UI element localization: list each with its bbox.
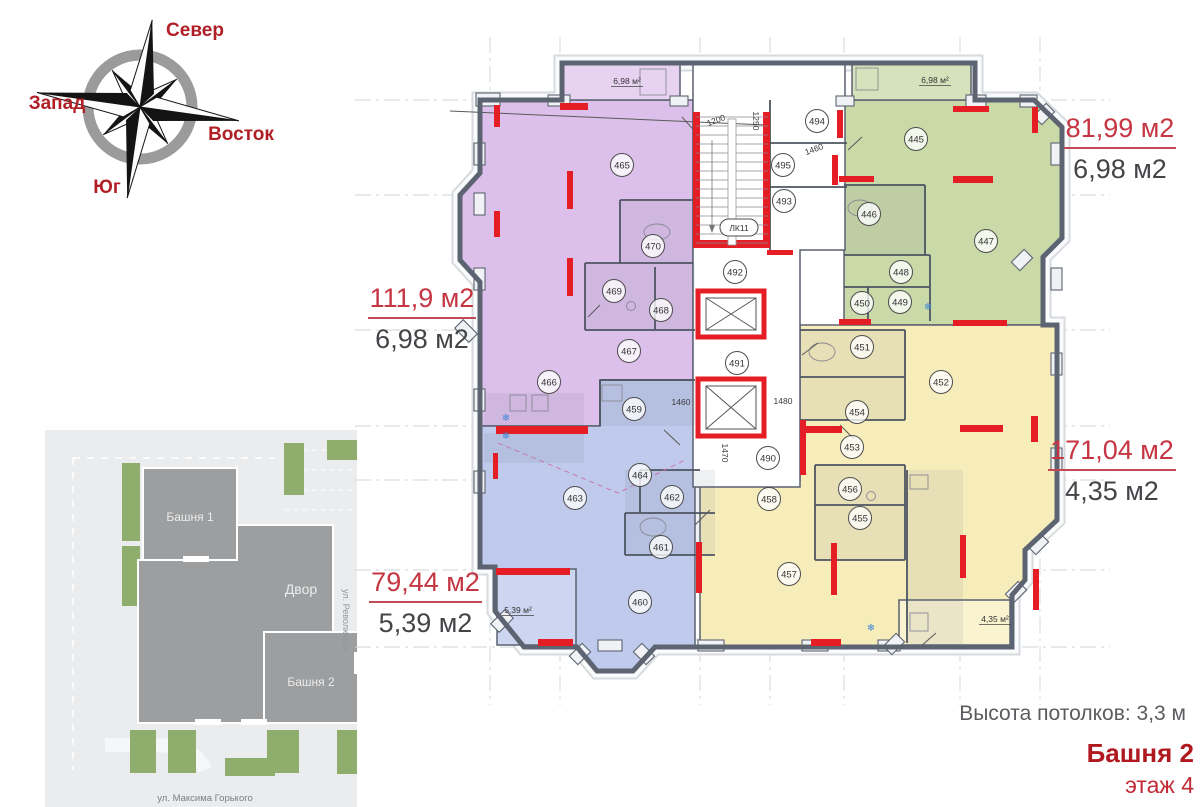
balcony-value: 6,98 м2	[1045, 154, 1195, 185]
balcony-value: 4,35 м2	[1032, 476, 1192, 507]
site-tower1-label: Башня 1	[166, 510, 214, 524]
svg-text:❄: ❄	[502, 431, 510, 442]
svg-text:459: 459	[626, 405, 642, 416]
svg-text:460: 460	[632, 598, 648, 609]
room-marker-470: 470	[642, 235, 665, 258]
room-marker-450: 450	[851, 292, 874, 315]
balcony-value: 6,98 м2	[352, 324, 492, 355]
balcony-area-label: 6,98 м²	[921, 75, 949, 85]
svg-text:493: 493	[776, 197, 792, 208]
room-marker-455: 455	[849, 507, 872, 530]
dimension-label: 1470	[720, 444, 730, 463]
area-value: 171,04 м2	[1048, 435, 1176, 471]
floor-plan: ❄❄❄❄ 46546646746846947044544644744844945…	[450, 55, 1065, 703]
svg-text:492: 492	[727, 268, 743, 279]
floor-number: этаж 4	[1125, 772, 1194, 799]
area-value: 79,44 м2	[369, 567, 482, 603]
room-marker-454: 454	[846, 401, 869, 424]
svg-text:464: 464	[632, 471, 648, 482]
dimension-label: 1250	[751, 112, 761, 131]
svg-text:490: 490	[760, 454, 776, 465]
room-marker-465: 465	[611, 154, 634, 177]
compass-rose: Север Запад Восток Юг	[10, 5, 290, 215]
svg-text:451: 451	[854, 343, 870, 354]
svg-text:456: 456	[842, 485, 858, 496]
room-marker-494: 494	[806, 110, 829, 133]
floor-plan-page: Север Запад Восток Юг	[0, 0, 1200, 807]
compass-label-west: Запад	[29, 93, 86, 114]
svg-text:ЛК11: ЛК11	[729, 223, 749, 233]
room-marker-469: 469	[603, 280, 626, 303]
svg-text:450: 450	[854, 299, 870, 310]
svg-text:❄: ❄	[502, 413, 510, 424]
svg-text:453: 453	[844, 443, 860, 454]
room-marker-447: 447	[975, 230, 998, 253]
room-marker-468: 468	[650, 299, 673, 322]
dimension-label: 1460	[672, 397, 691, 407]
dimension-label: 1480	[774, 396, 793, 406]
balcony-area-label: 6,98 м²	[613, 76, 641, 86]
room-marker-492: 492	[724, 261, 747, 284]
site-plan: Башня 1 Двор Башня 2 ул. Революции ул. М…	[45, 430, 357, 807]
stair-label: ЛК11	[720, 219, 758, 236]
svg-text:462: 462	[664, 493, 680, 504]
svg-text:466: 466	[541, 378, 557, 389]
ceiling-height-note: Высота потолков: 3,3 м	[959, 702, 1186, 726]
room-marker-451: 451	[851, 336, 874, 359]
room-marker-456: 456	[839, 478, 862, 501]
area-value: 81,99 м2	[1064, 113, 1177, 149]
svg-text:❄: ❄	[867, 623, 875, 634]
area-label-green: 81,99 м2 6,98 м2	[1045, 113, 1195, 185]
svg-text:465: 465	[614, 161, 630, 172]
room-marker-457: 457	[778, 563, 801, 586]
room-marker-453: 453	[841, 436, 864, 459]
svg-text:❄: ❄	[924, 302, 932, 313]
svg-text:446: 446	[861, 210, 877, 221]
svg-text:470: 470	[645, 242, 661, 253]
svg-text:491: 491	[729, 359, 745, 370]
svg-text:447: 447	[978, 237, 994, 248]
svg-text:463: 463	[567, 494, 583, 505]
svg-text:449: 449	[892, 298, 908, 309]
room-marker-491: 491	[726, 352, 749, 375]
balcony-value: 5,39 м2	[358, 608, 493, 639]
area-label-blue: 79,44 м2 5,39 м2	[358, 567, 493, 639]
area-label-purple: 111,9 м2 6,98 м2	[352, 283, 492, 355]
room-marker-467: 467	[618, 340, 641, 363]
room-marker-449: 449	[889, 291, 912, 314]
area-value: 111,9 м2	[368, 283, 477, 319]
room-marker-460: 460	[629, 591, 652, 614]
svg-text:457: 457	[781, 570, 797, 581]
compass-label-south: Юг	[93, 177, 121, 198]
site-street-right-label: ул. Революции	[341, 589, 351, 651]
room-marker-445: 445	[905, 128, 928, 151]
room-marker-458: 458	[758, 488, 781, 511]
compass-label-east: Восток	[208, 124, 274, 145]
room-marker-464: 464	[629, 464, 652, 487]
site-street-bottom-label: ул. Максима Горького	[157, 793, 253, 804]
svg-text:495: 495	[775, 161, 791, 172]
room-marker-463: 463	[564, 487, 587, 510]
room-marker-461: 461	[650, 536, 673, 559]
svg-text:458: 458	[761, 495, 777, 506]
room-marker-490: 490	[757, 447, 780, 470]
room-marker-459: 459	[623, 398, 646, 421]
area-label-yellow: 171,04 м2 4,35 м2	[1032, 435, 1192, 507]
apartment-regions	[460, 62, 1062, 671]
svg-text:455: 455	[852, 514, 868, 525]
room-marker-448: 448	[890, 261, 913, 284]
balcony-area-label: 5,39 м²	[504, 605, 532, 615]
site-tower2-label: Башня 2	[287, 675, 335, 689]
tower-title: Башня 2	[1087, 738, 1194, 769]
svg-text:468: 468	[653, 306, 669, 317]
svg-text:452: 452	[933, 378, 949, 389]
svg-text:454: 454	[849, 408, 865, 419]
room-marker-452: 452	[930, 371, 953, 394]
room-marker-493: 493	[773, 190, 796, 213]
room-marker-446: 446	[858, 203, 881, 226]
svg-text:494: 494	[809, 117, 825, 128]
svg-text:469: 469	[606, 287, 622, 298]
site-courtyard-label: Двор	[285, 581, 318, 597]
svg-text:445: 445	[908, 135, 924, 146]
balcony-green	[852, 63, 971, 100]
svg-text:448: 448	[893, 268, 909, 279]
room-marker-495: 495	[772, 154, 795, 177]
svg-text:467: 467	[621, 347, 637, 358]
svg-text:461: 461	[653, 543, 669, 554]
balcony-area-label: 4,35 м²	[981, 614, 1009, 624]
compass-label-north: Север	[166, 20, 224, 41]
room-marker-462: 462	[661, 486, 684, 509]
room-marker-466: 466	[538, 371, 561, 394]
